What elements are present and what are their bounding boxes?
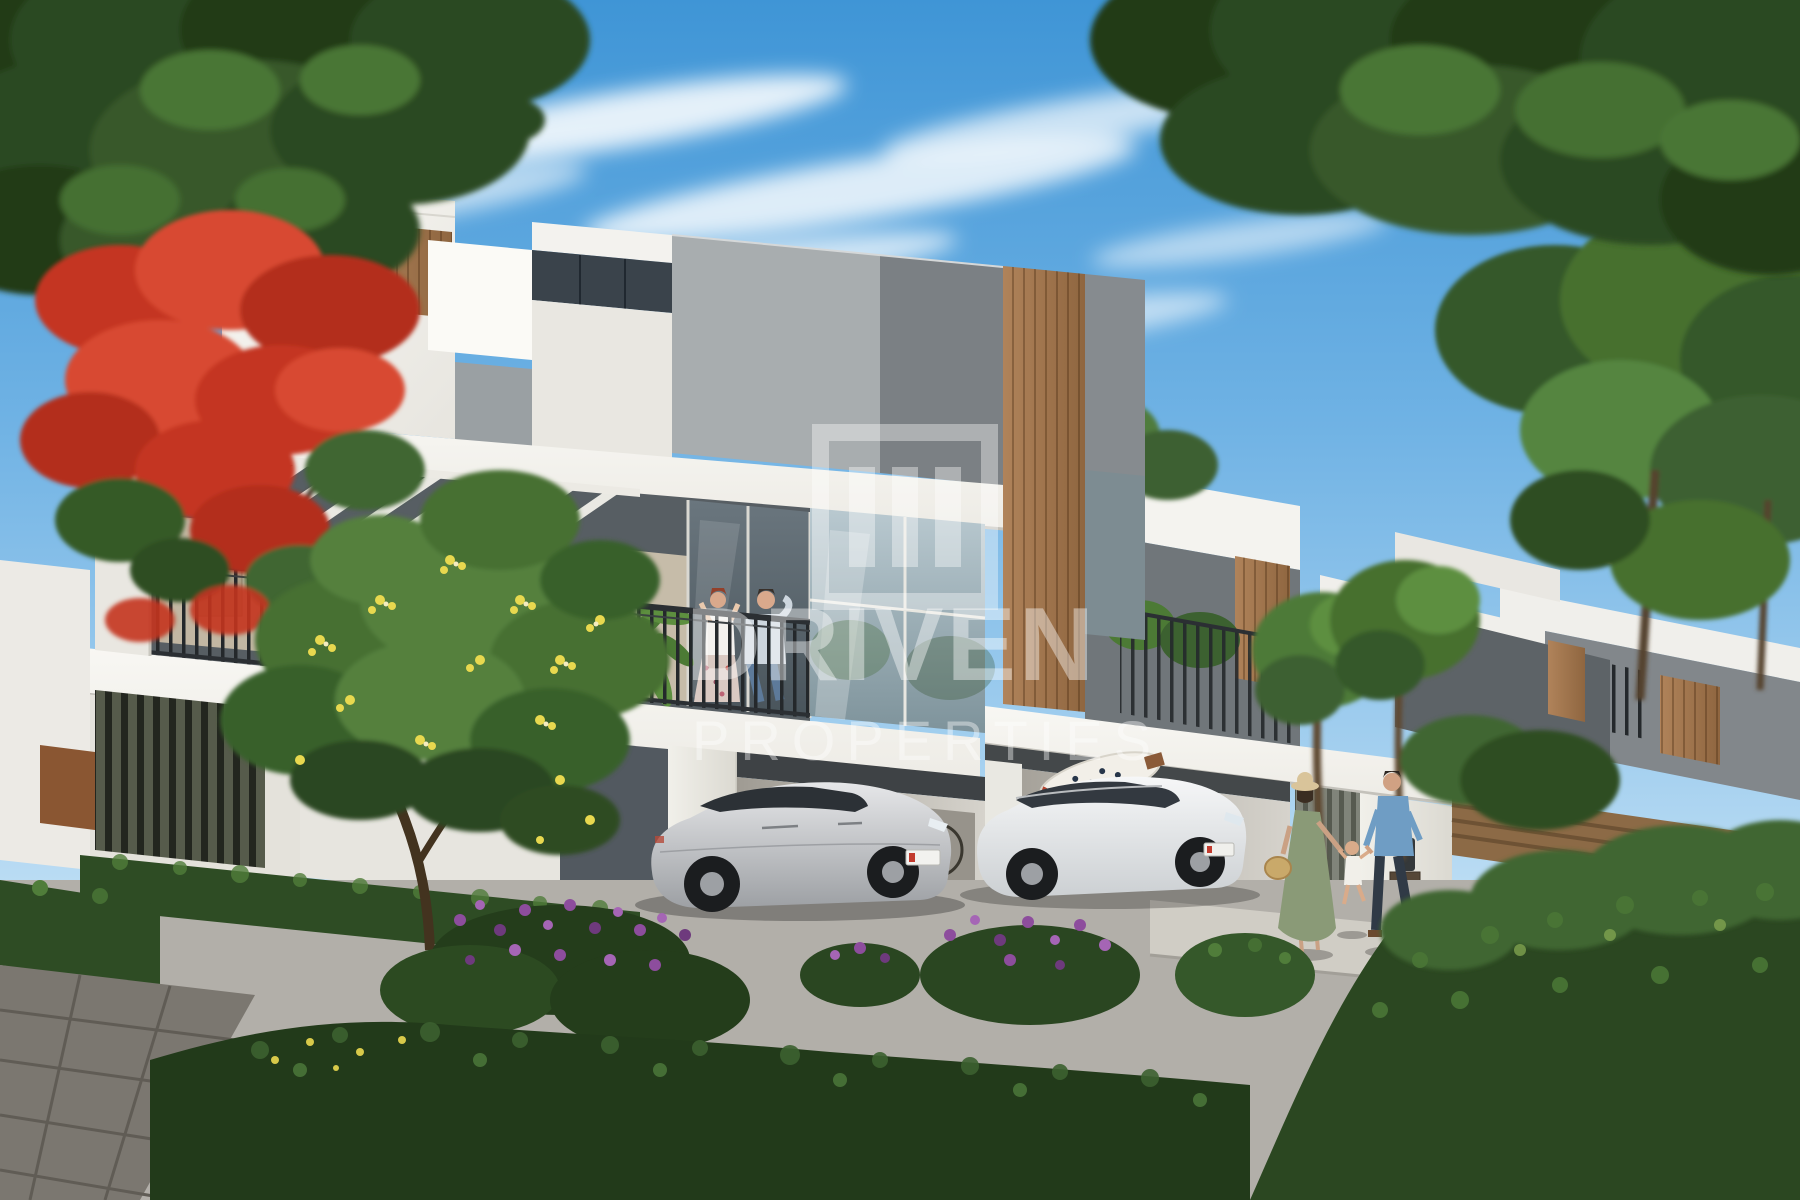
license-plate-sedan	[906, 850, 940, 865]
property-rendering: 45	[0, 0, 1800, 1200]
bush-front-family	[1175, 933, 1315, 1017]
scene-canvas: 45	[0, 0, 1800, 1200]
license-plate-suv	[1204, 843, 1234, 856]
corten-panel	[40, 745, 95, 830]
